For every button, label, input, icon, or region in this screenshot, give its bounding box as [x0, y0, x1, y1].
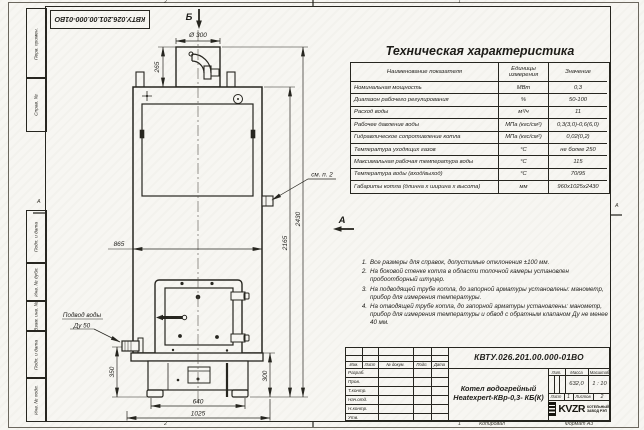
kvzr-logo-icon	[548, 402, 556, 416]
scale-label: Масштаб	[588, 370, 611, 375]
sig-prov: Пров.	[348, 379, 360, 384]
leader-line	[94, 329, 120, 342]
notes-list: 1.Все размеры для справок, допустимые от…	[356, 259, 610, 329]
dim-text-d300: Ø 300	[188, 32, 207, 39]
title-block: Изм. Лист № докум. Подп. Дата Разраб. Пр…	[345, 347, 610, 421]
view-arrow-b	[196, 9, 202, 29]
label-water-supply-dn: Ду 50	[73, 323, 91, 330]
dim-text-865: 865	[114, 241, 125, 248]
label-see-note-2: см. п. 2	[311, 172, 333, 179]
sig-utv: Утв.	[348, 415, 358, 420]
table-row: Рабочее давление водыМПа (кгс/см²)0,3(3,…	[351, 118, 609, 130]
dim-text-265: 265	[154, 61, 161, 73]
lit-label: Лит.	[548, 370, 565, 375]
product-name-line2: Heatexpert-КВр-0,3- КБ(К)	[453, 393, 543, 403]
panel-clip-left	[140, 130, 144, 138]
col-list: Лист	[362, 362, 378, 367]
dim-text-1025: 1025	[191, 411, 206, 418]
spec-header-name: Наименование показателя	[351, 63, 499, 81]
product-name-line1: Котел водогрейный	[461, 384, 536, 394]
sig-nachotd: Нач.отд.	[348, 397, 367, 402]
table-row: Температура воды (вход/выход)°С70/95	[351, 168, 609, 180]
col-data: Дата	[431, 362, 448, 367]
view-arrow-a	[333, 226, 354, 232]
format-label: Формат А3	[548, 421, 610, 428]
mass-value: 632,0	[565, 381, 588, 387]
dim-text-2165: 2165	[282, 235, 289, 251]
foot-left	[147, 390, 163, 397]
sampling-fitting	[262, 179, 336, 206]
copied-label: Копировал	[462, 421, 522, 428]
table-row: Температура уходящих газов°Сне более 250	[351, 143, 609, 155]
foot-right	[232, 390, 248, 397]
dim-text-2430: 2430	[295, 211, 302, 227]
note-3: 3.На подводящей трубе котла, до запорной…	[356, 286, 610, 302]
note-2: 2.На боковой стенке котла в области топо…	[356, 268, 610, 284]
label-water-supply: Подвод воды	[63, 311, 102, 319]
dim-text-350: 350	[109, 366, 116, 377]
table-row: Гидравлическое сопротивление котлаМПа (к…	[351, 131, 609, 143]
technical-characteristics-table: Наименование показателя Единицы измерени…	[350, 62, 610, 194]
drawing-sheet: 2 1 2 1 А А Перв. примен. Справ. № Подп.…	[0, 0, 644, 430]
base-plinth	[131, 353, 263, 397]
table-row: Максимальная рабочая температура воды°С1…	[351, 155, 609, 167]
document-number: КВТУ.026.201.00.000-01ВО	[449, 348, 609, 366]
door-hinge-top	[231, 292, 245, 300]
col-podp: Подп.	[413, 362, 431, 367]
lifting-lug-right	[227, 72, 235, 87]
door-hinge-bottom	[231, 334, 245, 342]
mass-label: Масса	[565, 370, 588, 375]
manufacturer-logo: KVZR КОТЕЛЬНЫЙ ЗАВОД РЭП	[548, 398, 609, 420]
spec-header-row: Наименование показателя Единицы измерени…	[351, 63, 609, 81]
note-4: 4.На отводящей трубе котла, до запорной …	[356, 303, 610, 328]
sig-razrab: Разраб.	[348, 370, 365, 375]
table-row: Номинальная мощностьМВт0,3	[351, 81, 609, 93]
kvzr-logo-text: KVZR	[558, 403, 585, 415]
col-docnum: № докум.	[378, 362, 413, 367]
dim-text-640: 640	[193, 399, 204, 406]
sig-tkontr: Т.контр.	[348, 388, 367, 393]
note-1: 1.Все размеры для справок, допустимые от…	[356, 259, 610, 267]
spec-table-title: Техническая характеристика	[352, 44, 608, 58]
furnace-door	[155, 280, 249, 357]
lifting-lug-left	[136, 72, 144, 87]
sig-nkontr: Н.контр.	[348, 406, 367, 411]
panel-clip-right	[251, 130, 255, 138]
table-row: Габариты котла (длинна х ширина х высота…	[351, 180, 609, 192]
scale-value: 1 : 10	[588, 381, 611, 387]
view-label-b: Б	[186, 12, 193, 23]
spec-header-units: Единицы измерения	[499, 63, 549, 81]
view-label-a: А	[338, 215, 346, 226]
table-row: Диапазон рабочего регулирования%50-100	[351, 93, 609, 105]
product-name: Котел водогрейный Heatexpert-КВр-0,3- КБ…	[449, 366, 548, 420]
table-row: Расход водым³/ч11	[351, 106, 609, 118]
col-izm: Изм.	[346, 362, 362, 367]
kvzr-logo-subtext: КОТЕЛЬНЫЙ ЗАВОД РЭП	[587, 405, 609, 413]
dim-text-300: 300	[262, 370, 269, 381]
leader-line	[272, 179, 336, 200]
spec-header-value: Значение	[549, 63, 607, 81]
